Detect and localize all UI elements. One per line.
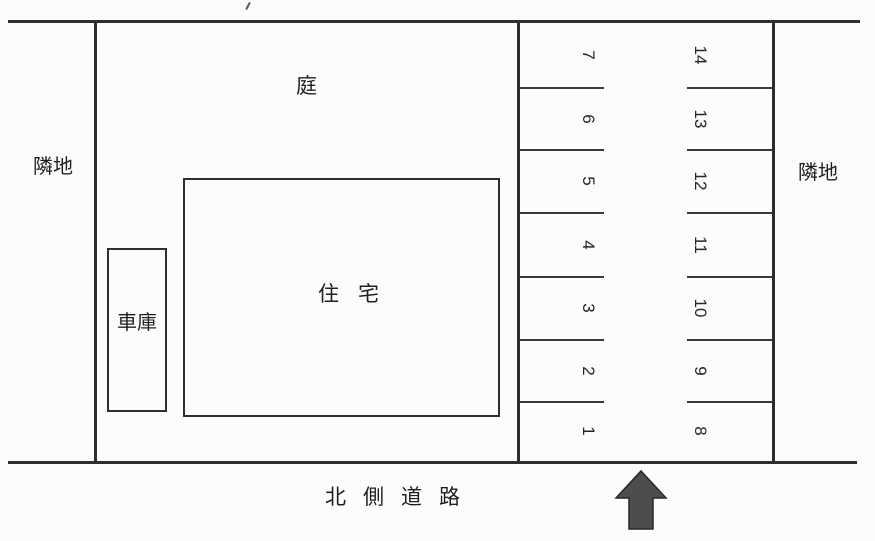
- stall-divider: [687, 149, 772, 151]
- parking-stall-number-13: 13: [684, 103, 716, 135]
- parking-stall-number-7: 7: [572, 39, 604, 71]
- stall-divider: [687, 87, 772, 89]
- stall-divider: [687, 339, 772, 341]
- stall-divider: [520, 339, 604, 341]
- parking-stall-number-2: 2: [572, 355, 604, 387]
- garage-label: 車庫: [117, 313, 157, 333]
- stall-divider: [687, 276, 772, 278]
- top-boundary-line: [8, 20, 860, 23]
- parking-stall-number-8: 8: [684, 415, 716, 447]
- parking-stall-number-3: 3: [572, 292, 604, 324]
- house-label: 住宅: [318, 284, 398, 305]
- neighbor-left-label: 隣地: [33, 157, 73, 177]
- stall-divider: [520, 401, 604, 403]
- parking-stall-number-6: 6: [572, 103, 604, 135]
- stall-divider: [520, 149, 604, 151]
- parking-stall-number-10: 10: [684, 292, 716, 324]
- stall-divider: [520, 276, 604, 278]
- parking-stall-number-5: 5: [572, 165, 604, 197]
- stall-divider: [687, 401, 772, 403]
- parking-stall-number-11: 11: [684, 229, 716, 261]
- parking-stall-number-4: 4: [572, 229, 604, 261]
- stall-divider: [520, 212, 604, 214]
- site-plan-diagram: 7 6 5 4 3 2 1 14 13 12 11 10 9 8 庭 住宅 車庫…: [0, 0, 875, 541]
- right-boundary-line: [772, 21, 775, 464]
- parking-stall-number-14: 14: [684, 39, 716, 71]
- stall-divider: [687, 212, 772, 214]
- entrance-up-arrow-icon: [612, 468, 668, 532]
- stall-divider: [520, 87, 604, 89]
- parking-stall-number-1: 1: [572, 415, 604, 447]
- parking-stall-number-9: 9: [684, 355, 716, 387]
- left-boundary-line: [94, 20, 97, 464]
- road-label: 北側道路: [325, 487, 477, 508]
- road-boundary-line: [8, 461, 857, 464]
- neighbor-right-label: 隣地: [798, 163, 838, 183]
- parking-stall-number-12: 12: [684, 165, 716, 197]
- scan-artifact: [245, 2, 251, 10]
- garden-label: 庭: [296, 76, 317, 97]
